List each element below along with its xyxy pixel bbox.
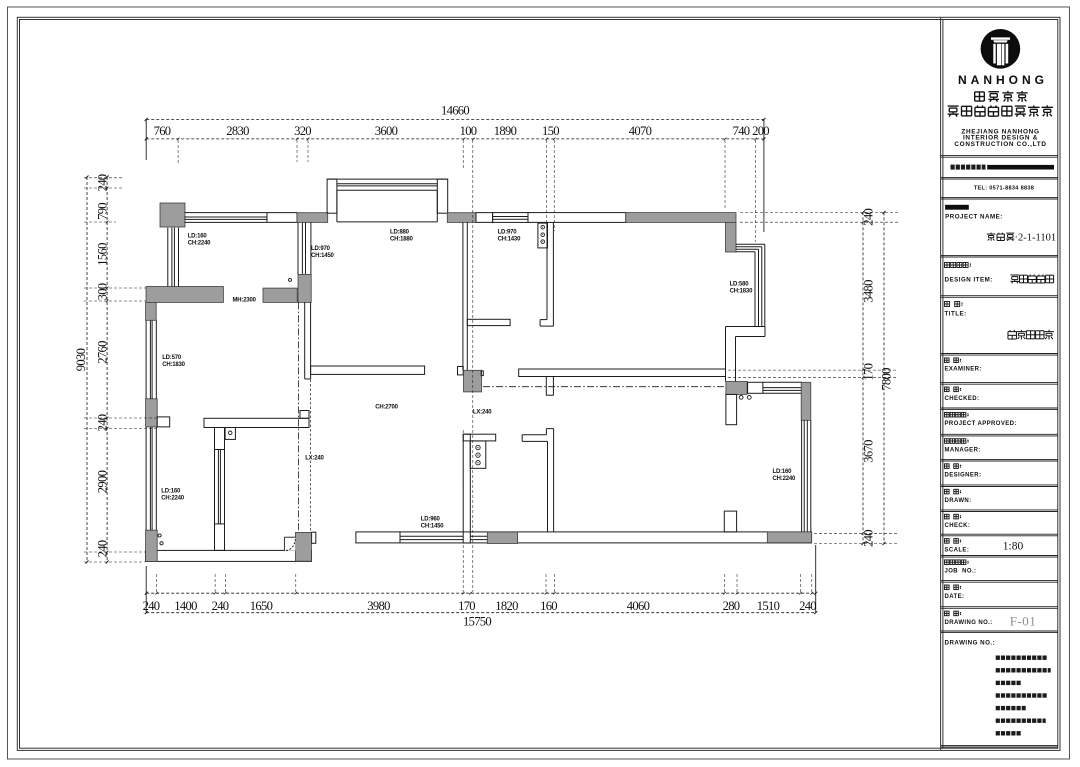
- svg-text:300: 300: [95, 283, 109, 300]
- svg-text:DESIGNER:: DESIGNER:: [945, 473, 982, 479]
- svg-text:TEL: 0571-8834 8838: TEL: 0571-8834 8838: [974, 186, 1034, 192]
- svg-text:LX:240: LX:240: [473, 410, 492, 416]
- svg-text:DRAWING NO.:: DRAWING NO.:: [945, 640, 996, 647]
- svg-text:F-01: F-01: [1010, 614, 1037, 629]
- svg-text:160: 160: [540, 599, 557, 613]
- svg-text:DESIGN ITEM:: DESIGN ITEM:: [945, 277, 993, 284]
- svg-text:1650: 1650: [250, 599, 273, 613]
- svg-text:100: 100: [460, 124, 477, 138]
- svg-text:2830: 2830: [226, 124, 249, 138]
- svg-text:240: 240: [95, 540, 109, 557]
- svg-text:9030: 9030: [74, 348, 88, 371]
- svg-text:LX:240: LX:240: [305, 455, 324, 461]
- svg-text:240: 240: [95, 174, 109, 191]
- svg-text:240: 240: [861, 209, 875, 226]
- svg-text:240: 240: [861, 530, 875, 547]
- svg-text:CONSTRUCTION CO.,LTD: CONSTRUCTION CO.,LTD: [954, 141, 1046, 148]
- svg-text:1560: 1560: [95, 243, 109, 266]
- svg-text:1890: 1890: [494, 124, 517, 138]
- svg-text:3670: 3670: [861, 440, 875, 463]
- svg-text:2900: 2900: [95, 470, 109, 493]
- svg-text:1:80: 1:80: [1003, 541, 1024, 553]
- svg-text:240: 240: [143, 599, 160, 613]
- svg-text:EXAMINER:: EXAMINER:: [945, 367, 982, 373]
- svg-text:TITLE:: TITLE:: [945, 311, 967, 318]
- svg-text:CH:2700: CH:2700: [375, 404, 398, 410]
- svg-text:MH:2300: MH:2300: [233, 297, 257, 303]
- svg-text:4070: 4070: [629, 124, 652, 138]
- svg-text:NANHONG: NANHONG: [958, 73, 1048, 87]
- svg-text:4060: 4060: [627, 599, 650, 613]
- svg-text:3600: 3600: [375, 124, 398, 138]
- svg-text:760: 760: [154, 124, 171, 138]
- svg-text:740: 740: [733, 124, 750, 138]
- svg-text:PROJECT NAME:: PROJECT NAME:: [945, 214, 1003, 221]
- svg-text:DRAWING NO.:: DRAWING NO.:: [945, 620, 993, 626]
- svg-text:280: 280: [723, 599, 740, 613]
- svg-text:1510: 1510: [757, 599, 780, 613]
- svg-text:SCALE:: SCALE:: [945, 547, 970, 553]
- svg-text:MANAGER:: MANAGER:: [945, 448, 981, 454]
- svg-text:PROJECT APPROVED:: PROJECT APPROVED:: [945, 421, 1017, 427]
- svg-text:15750: 15750: [463, 615, 491, 629]
- svg-text:790: 790: [95, 203, 109, 220]
- svg-text:14660: 14660: [441, 104, 469, 118]
- svg-text:240: 240: [799, 599, 816, 613]
- svg-text:JOB NO.:: JOB NO.:: [945, 569, 977, 575]
- svg-text:170: 170: [861, 363, 875, 380]
- svg-text:1400: 1400: [174, 599, 197, 613]
- svg-text:DATE:: DATE:: [945, 594, 965, 600]
- svg-text:7800: 7800: [880, 368, 894, 391]
- svg-text:CHECK:: CHECK:: [945, 523, 971, 529]
- svg-text:·2-1-1101: ·2-1-1101: [1015, 233, 1057, 244]
- svg-text:CHECKED:: CHECKED:: [945, 396, 980, 402]
- svg-text:1820: 1820: [495, 599, 518, 613]
- svg-text:170: 170: [458, 599, 475, 613]
- svg-text:240: 240: [212, 599, 229, 613]
- svg-text:DRAWN:: DRAWN:: [945, 498, 972, 504]
- svg-text:3480: 3480: [861, 280, 875, 303]
- svg-text:240: 240: [95, 414, 109, 431]
- svg-text:200: 200: [752, 124, 769, 138]
- svg-text:150: 150: [542, 124, 559, 138]
- svg-text:2760: 2760: [95, 341, 109, 364]
- svg-text:320: 320: [294, 124, 311, 138]
- svg-text:3980: 3980: [367, 599, 390, 613]
